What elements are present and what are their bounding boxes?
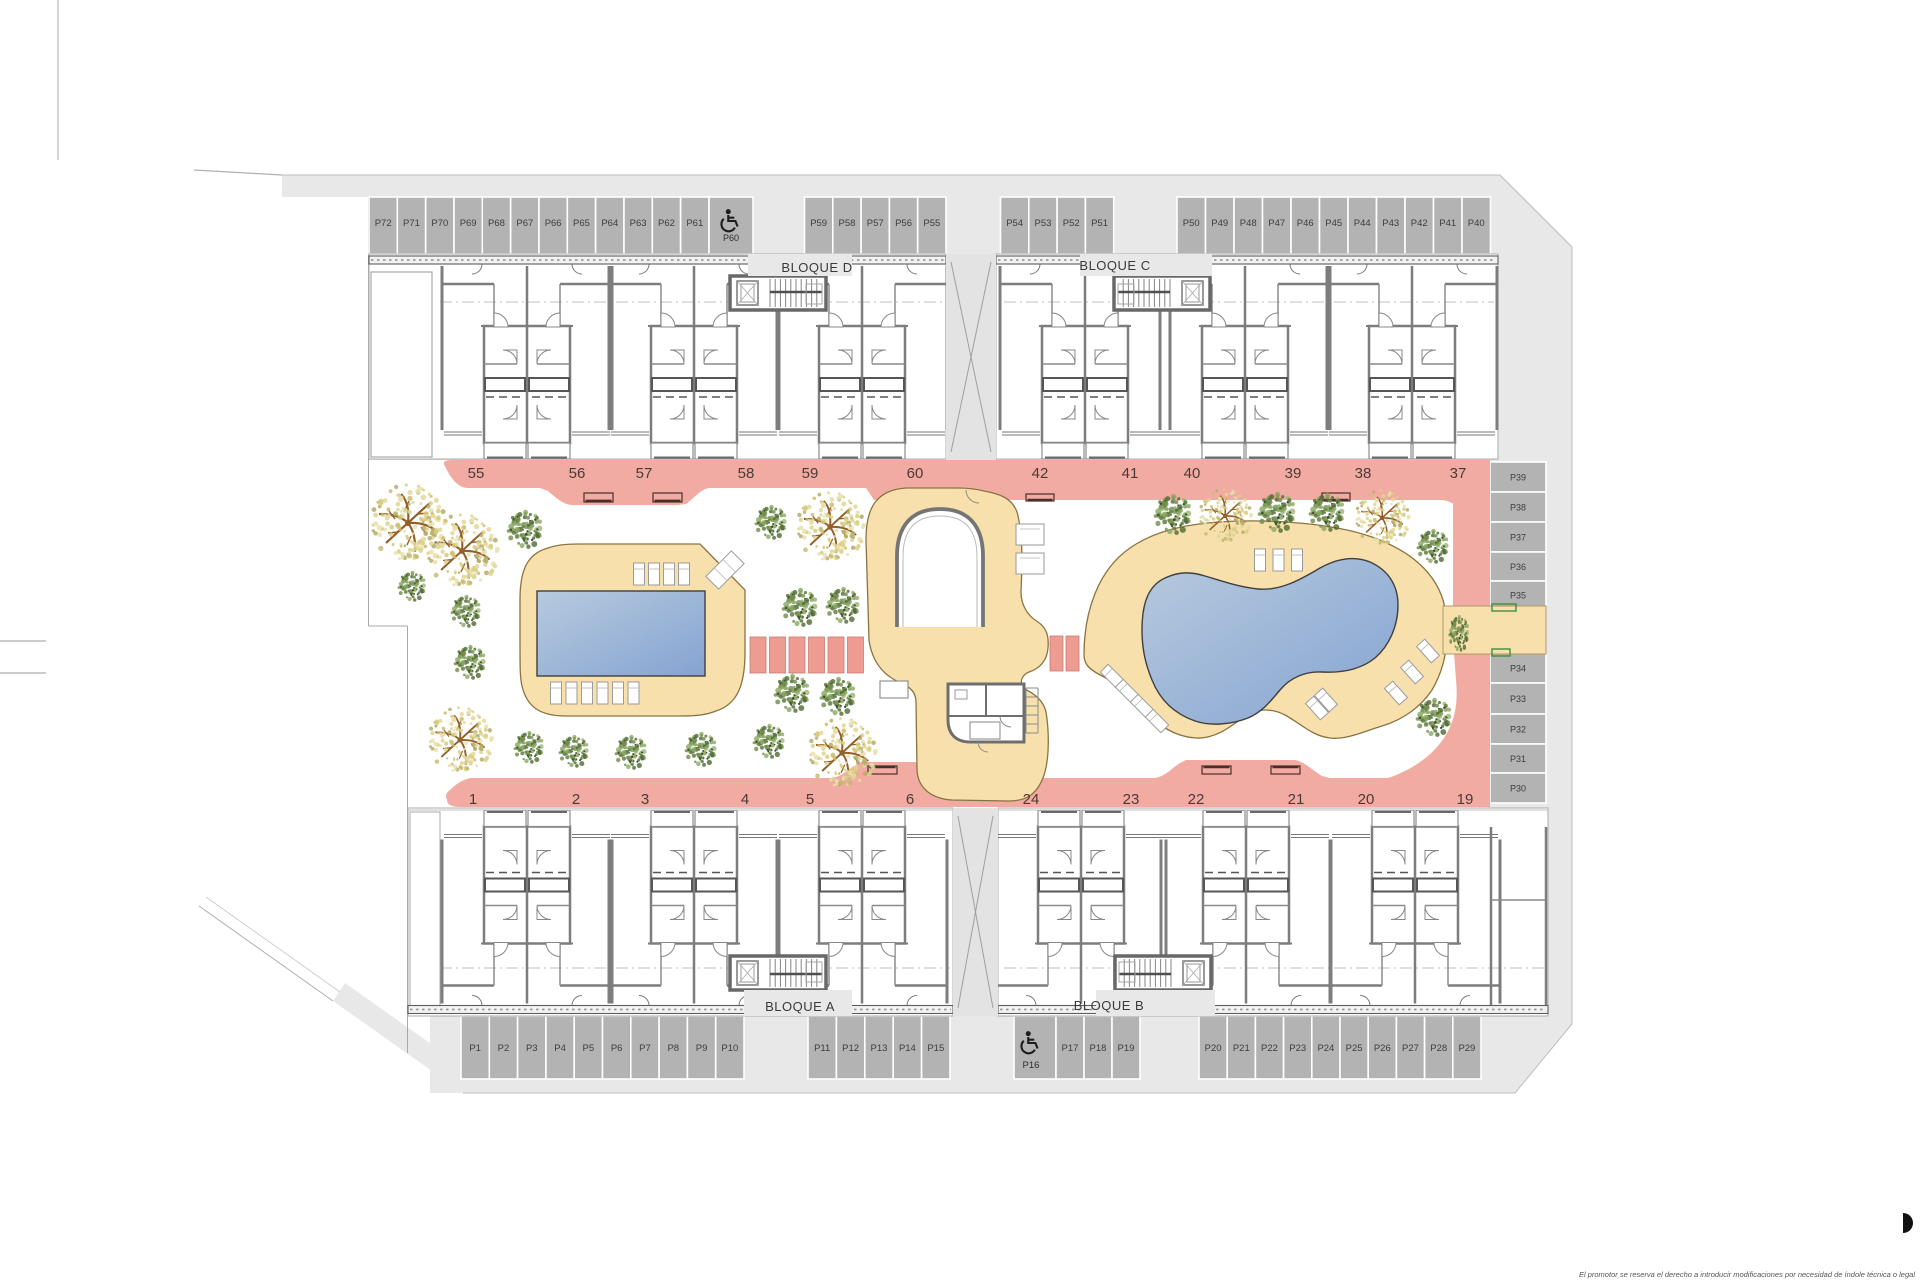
svg-text:39: 39 (1285, 465, 1302, 482)
svg-text:56: 56 (569, 465, 586, 482)
svg-text:22: 22 (1188, 791, 1205, 808)
svg-text:BLOQUE B: BLOQUE B (1074, 998, 1144, 1013)
svg-text:P64: P64 (601, 218, 618, 229)
svg-text:4: 4 (741, 791, 749, 808)
svg-text:P9: P9 (696, 1043, 708, 1054)
svg-text:P26: P26 (1374, 1043, 1391, 1054)
svg-text:38: 38 (1355, 465, 1372, 482)
svg-text:55: 55 (468, 465, 485, 482)
svg-text:P58: P58 (838, 218, 855, 229)
svg-text:P68: P68 (488, 218, 505, 229)
svg-text:P42: P42 (1411, 218, 1428, 229)
svg-text:P49: P49 (1211, 218, 1228, 229)
svg-text:P70: P70 (431, 218, 448, 229)
svg-text:19: 19 (1457, 791, 1474, 808)
svg-text:3: 3 (641, 791, 649, 808)
svg-text:20: 20 (1358, 791, 1375, 808)
svg-text:P59: P59 (810, 218, 827, 229)
svg-text:1: 1 (469, 791, 477, 808)
svg-text:P63: P63 (630, 218, 647, 229)
svg-text:P15: P15 (927, 1043, 944, 1054)
svg-text:P10: P10 (721, 1043, 738, 1054)
svg-text:P41: P41 (1439, 218, 1456, 229)
svg-text:P48: P48 (1240, 218, 1257, 229)
svg-text:P50: P50 (1183, 218, 1200, 229)
svg-text:P28: P28 (1430, 1043, 1447, 1054)
svg-text:P39: P39 (1510, 473, 1526, 483)
svg-text:P31: P31 (1510, 754, 1526, 764)
svg-text:P52: P52 (1063, 218, 1080, 229)
svg-text:P2: P2 (498, 1043, 510, 1054)
svg-text:P67: P67 (516, 218, 533, 229)
svg-text:P71: P71 (403, 218, 420, 229)
svg-text:P19: P19 (1118, 1043, 1135, 1054)
svg-text:P53: P53 (1034, 218, 1051, 229)
svg-text:P57: P57 (867, 218, 884, 229)
svg-text:P43: P43 (1382, 218, 1399, 229)
svg-text:P36: P36 (1510, 562, 1526, 572)
svg-text:21: 21 (1288, 791, 1305, 808)
svg-text:P30: P30 (1510, 784, 1526, 794)
svg-text:5: 5 (806, 791, 814, 808)
svg-text:P54: P54 (1006, 218, 1023, 229)
svg-text:P60: P60 (723, 233, 739, 243)
svg-text:P40: P40 (1468, 218, 1485, 229)
svg-text:P20: P20 (1205, 1043, 1222, 1054)
svg-text:42: 42 (1032, 465, 1049, 482)
svg-text:P55: P55 (923, 218, 940, 229)
svg-text:P62: P62 (658, 218, 675, 229)
svg-text:P16: P16 (1023, 1060, 1040, 1071)
svg-text:23: 23 (1123, 791, 1140, 808)
svg-text:P27: P27 (1402, 1043, 1419, 1054)
svg-text:P17: P17 (1062, 1043, 1079, 1054)
svg-text:P22: P22 (1261, 1043, 1278, 1054)
svg-text:P38: P38 (1510, 503, 1526, 513)
svg-text:P21: P21 (1233, 1043, 1250, 1054)
svg-text:P14: P14 (899, 1043, 916, 1054)
svg-text:P51: P51 (1091, 218, 1108, 229)
svg-text:P72: P72 (375, 218, 392, 229)
svg-text:P47: P47 (1268, 218, 1285, 229)
svg-text:59: 59 (802, 465, 819, 482)
svg-text:El promotor se reserva el dere: El promotor se reserva el derecho a intr… (1579, 1270, 1915, 1279)
svg-text:P18: P18 (1090, 1043, 1107, 1054)
svg-text:60: 60 (907, 465, 924, 482)
svg-text:P3: P3 (526, 1043, 538, 1054)
svg-text:P33: P33 (1510, 694, 1526, 704)
svg-text:37: 37 (1450, 465, 1467, 482)
svg-text:P32: P32 (1510, 725, 1526, 735)
svg-text:P65: P65 (573, 218, 590, 229)
svg-text:P25: P25 (1346, 1043, 1363, 1054)
svg-text:2: 2 (572, 791, 580, 808)
svg-text:P12: P12 (842, 1043, 859, 1054)
svg-text:P69: P69 (460, 218, 477, 229)
svg-text:P23: P23 (1289, 1043, 1306, 1054)
svg-text:BLOQUE A: BLOQUE A (765, 999, 835, 1014)
svg-text:P11: P11 (814, 1043, 830, 1054)
svg-text:P8: P8 (667, 1043, 679, 1054)
svg-text:BLOQUE C: BLOQUE C (1079, 258, 1150, 273)
svg-text:40: 40 (1184, 465, 1201, 482)
svg-text:41: 41 (1122, 465, 1139, 482)
svg-text:P29: P29 (1458, 1043, 1475, 1054)
svg-text:P24: P24 (1317, 1043, 1334, 1054)
svg-text:P37: P37 (1510, 533, 1526, 543)
svg-text:24: 24 (1023, 791, 1040, 808)
svg-text:P6: P6 (611, 1043, 623, 1054)
svg-text:P7: P7 (639, 1043, 651, 1054)
svg-text:P13: P13 (871, 1043, 888, 1054)
svg-text:58: 58 (738, 465, 755, 482)
svg-text:P4: P4 (554, 1043, 566, 1054)
svg-text:BLOQUE D: BLOQUE D (781, 260, 852, 275)
svg-text:P44: P44 (1354, 218, 1371, 229)
svg-text:P1: P1 (469, 1043, 481, 1054)
svg-text:P61: P61 (686, 218, 703, 229)
svg-text:P34: P34 (1510, 664, 1526, 674)
svg-text:P5: P5 (583, 1043, 595, 1054)
svg-text:P45: P45 (1325, 218, 1342, 229)
svg-text:P35: P35 (1510, 591, 1526, 601)
svg-text:P46: P46 (1297, 218, 1314, 229)
svg-text:P56: P56 (895, 218, 912, 229)
svg-text:6: 6 (906, 791, 914, 808)
svg-text:P66: P66 (545, 218, 562, 229)
svg-text:57: 57 (636, 465, 653, 482)
